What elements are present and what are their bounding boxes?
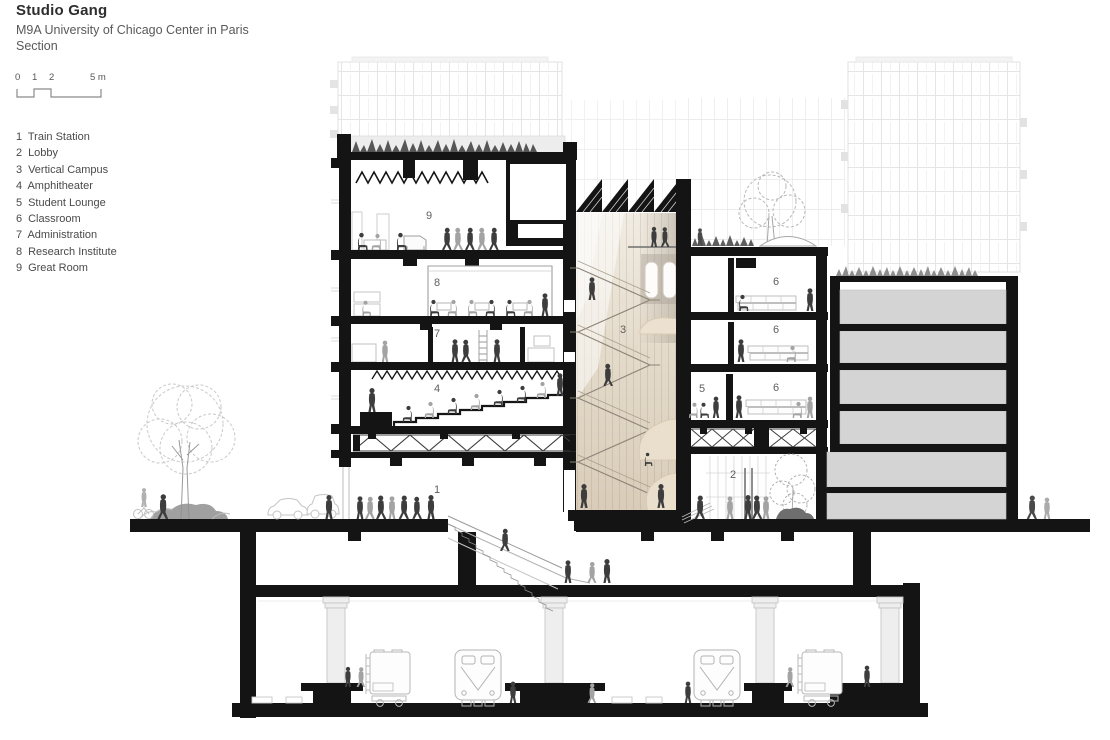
background-building-left <box>338 62 562 140</box>
gray-right-wall <box>1006 276 1018 520</box>
lobby <box>682 454 815 523</box>
label-classroom-3: 6 <box>773 382 779 394</box>
atrium-right-wall <box>676 179 691 520</box>
classroom-middle <box>728 322 808 364</box>
ladder <box>479 330 487 362</box>
station-floor-slab <box>232 703 928 717</box>
station-people <box>345 666 870 704</box>
floor-amphitheater <box>360 373 576 426</box>
label-classroom-2: 6 <box>773 324 779 336</box>
classroom-upper <box>728 258 813 312</box>
ground-floor-glazing <box>343 467 349 519</box>
amphitheater-steps <box>394 395 576 426</box>
label-train-station: 1 <box>434 484 440 496</box>
cyclist <box>134 488 154 518</box>
label-student-lounge: 5 <box>699 383 705 395</box>
floor-great-room <box>352 160 568 250</box>
train <box>455 650 501 706</box>
gray-left-wall <box>830 276 840 446</box>
ground-slab-left <box>130 519 448 532</box>
label-classroom-1: 6 <box>773 276 779 288</box>
label-amphitheater: 4 <box>434 383 440 395</box>
train-station <box>232 532 928 718</box>
atrium-window <box>645 262 658 298</box>
concourse-people <box>357 495 435 519</box>
floor-administration <box>352 327 554 362</box>
station-left-wall <box>240 532 256 718</box>
label-lobby: 2 <box>730 469 736 481</box>
classroom-lower-and-lounge <box>689 374 813 420</box>
station-right-wall <box>903 583 920 717</box>
stage <box>360 412 392 426</box>
street-tree <box>138 384 235 519</box>
station-roof-slab <box>240 585 920 597</box>
floor-research-institute <box>354 266 552 316</box>
label-vertical-campus: 3 <box>620 324 626 336</box>
gray-building <box>827 266 1018 520</box>
background-curtainwall-right <box>682 98 845 246</box>
drawing-sheet: Studio Gang M9A University of Chicago Ce… <box>0 0 1110 740</box>
atrium-window <box>663 262 676 298</box>
background-building-right <box>848 62 1020 272</box>
grand-piano <box>404 236 426 250</box>
lobby-shrub <box>776 508 814 519</box>
roof-slab <box>337 152 577 160</box>
train <box>694 650 740 706</box>
vertical-campus-atrium <box>568 179 682 531</box>
amphitheater-ceiling-zigzag <box>372 371 562 379</box>
section-drawing: 9 8 7 4 3 5 6 6 6 1 2 <box>0 0 1110 740</box>
penthouse-room <box>508 162 568 222</box>
classroom-truss <box>691 427 816 448</box>
label-great-room: 9 <box>426 210 432 222</box>
label-administration: 7 <box>434 328 440 340</box>
classroom-right-wall <box>816 255 827 520</box>
train <box>366 650 410 706</box>
label-research-institute: 8 <box>434 277 440 289</box>
atrium-base-slab <box>568 510 682 521</box>
left-facade-wall <box>339 152 351 467</box>
